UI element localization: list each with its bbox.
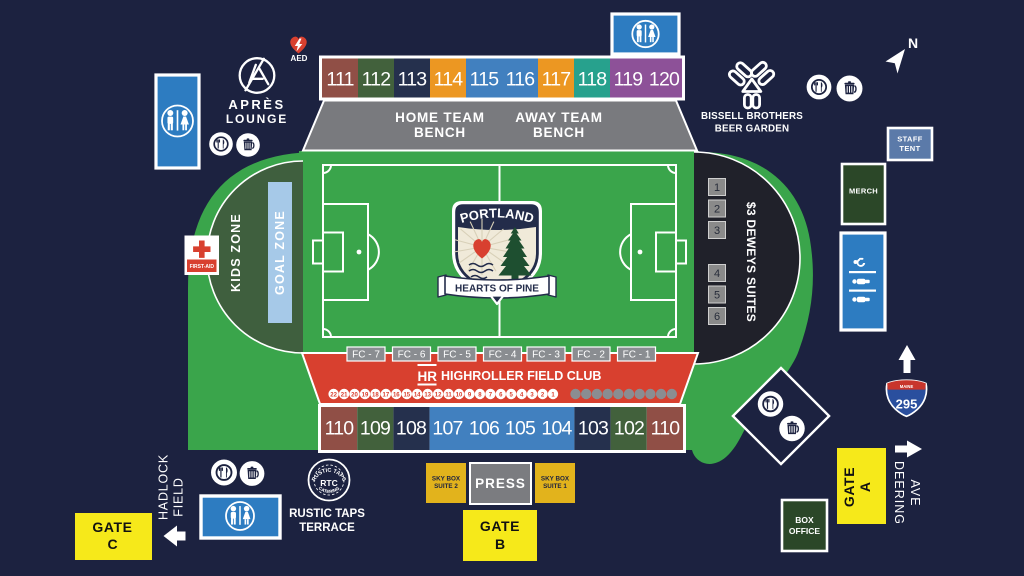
svg-text:FC - 7: FC - 7	[352, 350, 380, 361]
svg-text:A: A	[857, 482, 873, 492]
svg-text:TERRACE: TERRACE	[299, 522, 355, 534]
svg-text:SUITE 2: SUITE 2	[434, 483, 458, 490]
svg-text:112: 112	[362, 69, 391, 91]
svg-text:GATE: GATE	[841, 467, 857, 507]
svg-text:111: 111	[326, 69, 353, 91]
svg-text:118: 118	[578, 69, 607, 91]
svg-text:6: 6	[714, 311, 720, 323]
svg-text:FIRST-AID: FIRST-AID	[190, 264, 215, 270]
svg-text:115: 115	[470, 69, 500, 91]
svg-text:HIGHROLLER FIELD CLUB: HIGHROLLER FIELD CLUB	[441, 369, 601, 383]
svg-text:BENCH: BENCH	[414, 125, 466, 140]
svg-text:GATE: GATE	[480, 518, 520, 534]
svg-text:4: 4	[714, 268, 720, 280]
svg-text:102: 102	[614, 418, 644, 440]
svg-text:17: 17	[383, 393, 390, 399]
svg-text:N: N	[908, 35, 918, 51]
svg-text:117: 117	[542, 69, 571, 91]
svg-text:104: 104	[541, 418, 572, 440]
svg-text:15: 15	[403, 393, 410, 399]
svg-text:109: 109	[360, 418, 390, 440]
svg-text:STAFF: STAFF	[897, 135, 923, 144]
svg-text:RTC: RTC	[320, 478, 337, 488]
svg-text:114: 114	[434, 69, 464, 91]
svg-text:113: 113	[398, 69, 427, 91]
svg-text:12: 12	[435, 393, 442, 399]
svg-text:HR: HR	[418, 369, 438, 384]
svg-text:HEARTS OF PINE: HEARTS OF PINE	[455, 284, 539, 295]
svg-text:DEERING: DEERING	[892, 461, 906, 525]
svg-text:FC - 1: FC - 1	[623, 350, 651, 361]
svg-text:110: 110	[325, 418, 355, 440]
svg-text:BEER GARDEN: BEER GARDEN	[715, 124, 790, 135]
svg-text:AVE: AVE	[908, 479, 922, 506]
svg-text:1: 1	[714, 182, 720, 194]
svg-text:106: 106	[469, 418, 499, 440]
svg-text:FC - 4: FC - 4	[489, 350, 517, 361]
svg-text:13: 13	[424, 393, 431, 399]
svg-text:RUSTIC TAPS: RUSTIC TAPS	[289, 508, 365, 520]
svg-text:MAINE: MAINE	[900, 384, 914, 389]
svg-text:120: 120	[649, 69, 680, 91]
svg-text:107: 107	[432, 418, 462, 440]
svg-text:FC - 2: FC - 2	[577, 350, 605, 361]
svg-text:PRESS: PRESS	[475, 476, 526, 491]
svg-text:B: B	[495, 536, 505, 552]
svg-text:BOX: BOX	[795, 515, 814, 525]
svg-text:FIELD: FIELD	[172, 477, 186, 516]
svg-text:LOUNGE: LOUNGE	[226, 112, 288, 126]
svg-text:AED: AED	[291, 54, 308, 63]
svg-text:103: 103	[578, 418, 608, 440]
svg-text:TENT: TENT	[899, 144, 920, 153]
svg-text:110: 110	[651, 418, 681, 440]
svg-text:14: 14	[414, 393, 421, 399]
svg-text:GOAL ZONE: GOAL ZONE	[273, 210, 287, 295]
svg-text:295: 295	[896, 397, 918, 412]
svg-text:FC - 3: FC - 3	[532, 350, 560, 361]
svg-text:19: 19	[362, 393, 369, 399]
svg-text:FC - 6: FC - 6	[398, 350, 426, 361]
svg-text:GATE: GATE	[92, 519, 132, 535]
svg-text:22: 22	[330, 393, 337, 399]
svg-text:APRÈS: APRÈS	[228, 97, 285, 112]
svg-text:3: 3	[714, 225, 720, 237]
svg-text:BISSELL BROTHERS: BISSELL BROTHERS	[701, 111, 803, 122]
svg-text:105: 105	[505, 418, 536, 440]
svg-text:2: 2	[714, 204, 720, 216]
svg-text:KIDS ZONE: KIDS ZONE	[229, 213, 243, 292]
svg-text:11: 11	[445, 393, 452, 399]
svg-text:SKY BOX: SKY BOX	[432, 476, 461, 483]
svg-text:10: 10	[456, 393, 463, 399]
svg-text:16: 16	[393, 393, 400, 399]
svg-text:FC - 5: FC - 5	[443, 350, 471, 361]
svg-text:HADLOCK: HADLOCK	[157, 454, 171, 520]
svg-text:119: 119	[614, 69, 643, 91]
svg-text:21: 21	[341, 393, 348, 399]
svg-text:OFFICE: OFFICE	[789, 526, 820, 536]
svg-text:108: 108	[396, 418, 426, 440]
svg-text:$3 DEWEYS SUITES: $3 DEWEYS SUITES	[744, 202, 758, 322]
svg-text:BENCH: BENCH	[533, 125, 585, 140]
svg-text:SKY BOX: SKY BOX	[541, 476, 570, 483]
svg-text:C: C	[107, 536, 117, 552]
svg-text:HOME TEAM: HOME TEAM	[395, 110, 485, 125]
svg-text:20: 20	[351, 393, 358, 399]
svg-text:AWAY TEAM: AWAY TEAM	[515, 110, 602, 125]
svg-text:5: 5	[714, 290, 720, 302]
svg-text:SUITE 1: SUITE 1	[543, 483, 567, 490]
svg-text:116: 116	[506, 69, 535, 91]
svg-text:18: 18	[372, 393, 379, 399]
svg-text:MERCH: MERCH	[849, 187, 878, 196]
